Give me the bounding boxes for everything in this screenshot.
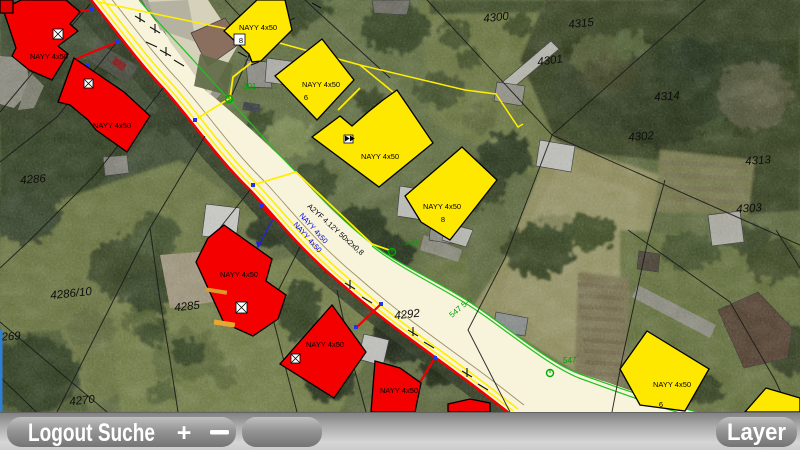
svg-text:300: 300 xyxy=(404,238,418,247)
svg-text:269: 269 xyxy=(0,330,22,343)
svg-text:+: + xyxy=(177,419,192,447)
svg-text:301: 301 xyxy=(243,82,257,91)
svg-text:NAYY 4x50: NAYY 4x50 xyxy=(380,386,418,395)
svg-text:NAYY 4x50: NAYY 4x50 xyxy=(220,270,258,279)
svg-text:Layer: Layer xyxy=(727,419,786,446)
svg-text:6: 6 xyxy=(659,400,663,409)
svg-text:NAYY 4x50: NAYY 4x50 xyxy=(30,52,68,61)
svg-text:6: 6 xyxy=(304,93,308,102)
svg-text:NAYY 4x50: NAYY 4x50 xyxy=(306,340,344,349)
svg-text:4314: 4314 xyxy=(654,90,680,104)
svg-text:NAYY 4x50: NAYY 4x50 xyxy=(653,380,691,389)
svg-text:4303: 4303 xyxy=(736,202,763,216)
svg-text:NAYY 4x50: NAYY 4x50 xyxy=(361,152,399,161)
svg-text:NAYY 4x50: NAYY 4x50 xyxy=(423,202,461,211)
svg-text:Logout Suche: Logout Suche xyxy=(28,419,155,447)
svg-text:4286: 4286 xyxy=(20,173,47,187)
svg-text:NAYY 4x50: NAYY 4x50 xyxy=(302,80,340,89)
svg-text:NAYY 4x50: NAYY 4x50 xyxy=(93,121,131,130)
svg-text:547: 547 xyxy=(563,356,577,365)
svg-text:8: 8 xyxy=(441,215,445,224)
svg-text:4313: 4313 xyxy=(745,154,772,168)
svg-text:8: 8 xyxy=(239,36,243,45)
svg-text:4302: 4302 xyxy=(628,130,655,144)
svg-text:NAYY 4x50: NAYY 4x50 xyxy=(239,23,277,32)
